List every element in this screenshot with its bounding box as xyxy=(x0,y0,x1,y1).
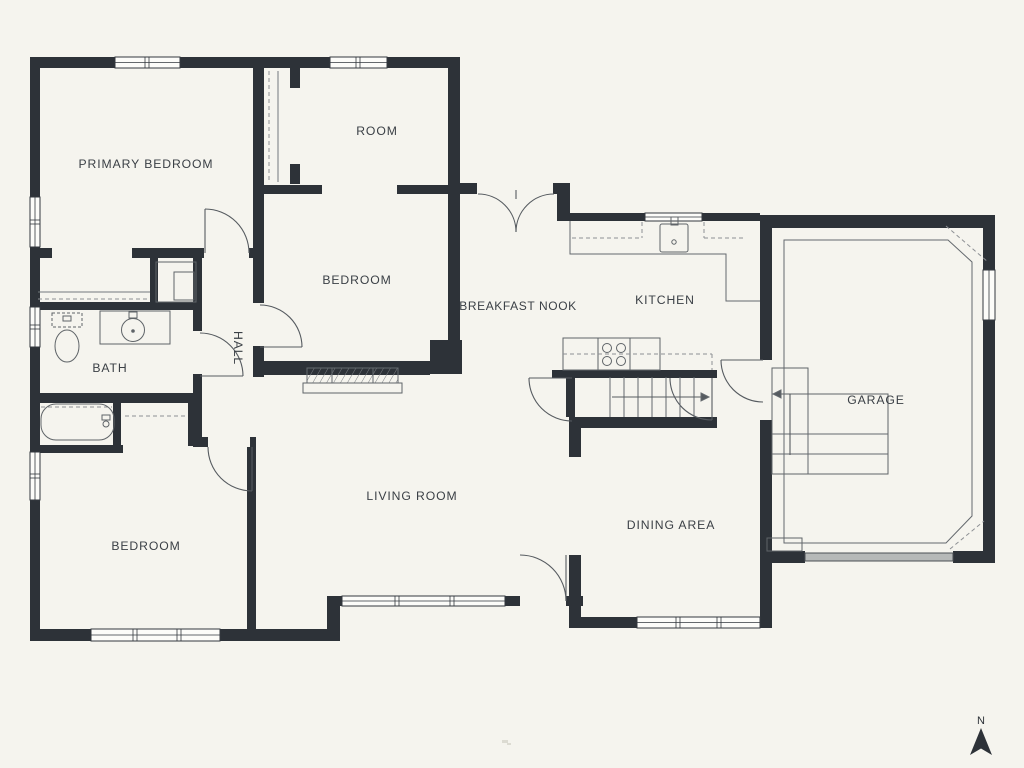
window-primary-left xyxy=(30,197,40,247)
door-garage-entry xyxy=(721,360,763,402)
label-dining-area: DINING AREA xyxy=(627,518,715,532)
fireplace xyxy=(303,368,402,393)
label-bath: BATH xyxy=(92,361,127,375)
window-primary-top xyxy=(115,57,180,68)
window-bedroom-left xyxy=(30,452,40,500)
door-primary-bedroom xyxy=(205,209,249,253)
toilet-fixture xyxy=(52,313,82,362)
label-bedroom-lower: BEDROOM xyxy=(111,539,180,553)
label-living-room: LIVING ROOM xyxy=(366,489,457,503)
bathtub-fixture xyxy=(41,404,114,440)
window-bath-left xyxy=(30,307,40,347)
window-living-bottom xyxy=(342,596,505,606)
door-bedroom-middle xyxy=(260,305,302,347)
north-arrow-icon: N xyxy=(970,715,992,755)
labels-layer: PRIMARY BEDROOM ROOM BEDROOM BREAKFAST N… xyxy=(79,124,905,553)
kitchen-sink-fixture xyxy=(660,217,688,252)
primary-closet xyxy=(38,292,150,299)
door-breakfast-nook-double xyxy=(478,190,554,232)
label-room: ROOM xyxy=(356,124,398,138)
window-garage-right xyxy=(983,270,995,320)
label-garage: GARAGE xyxy=(847,393,905,407)
window-room-top xyxy=(330,57,387,68)
floor-plan: PRIMARY BEDROOM ROOM BEDROOM BREAKFAST N… xyxy=(0,0,1024,768)
floor-plan-canvas: PRIMARY BEDROOM ROOM BEDROOM BREAKFAST N… xyxy=(0,0,1024,768)
label-hall: HALL xyxy=(231,331,245,365)
stairs xyxy=(610,377,709,417)
room-closet xyxy=(269,71,278,182)
utility-closet xyxy=(156,262,196,302)
label-kitchen: KITCHEN xyxy=(635,293,695,307)
label-bedroom-middle: BEDROOM xyxy=(322,273,391,287)
garage-outline xyxy=(784,226,988,549)
window-dining-bottom xyxy=(637,617,760,628)
window-bedroom-bottom xyxy=(91,629,220,641)
north-label: N xyxy=(977,715,985,727)
door-stair-hall xyxy=(529,378,572,421)
garage-door xyxy=(805,553,953,561)
windows-layer xyxy=(30,57,995,641)
watermark-mark xyxy=(502,740,511,745)
label-breakfast-nook: BREAKFAST NOOK xyxy=(459,299,577,313)
stove-fixture xyxy=(563,338,712,370)
bathroom-sink-fixture xyxy=(100,311,170,344)
door-living-entry xyxy=(520,555,566,601)
kitchen-counter xyxy=(570,221,760,301)
door-bedroom-lower xyxy=(208,447,252,491)
label-primary-bedroom: PRIMARY BEDROOM xyxy=(79,157,214,171)
